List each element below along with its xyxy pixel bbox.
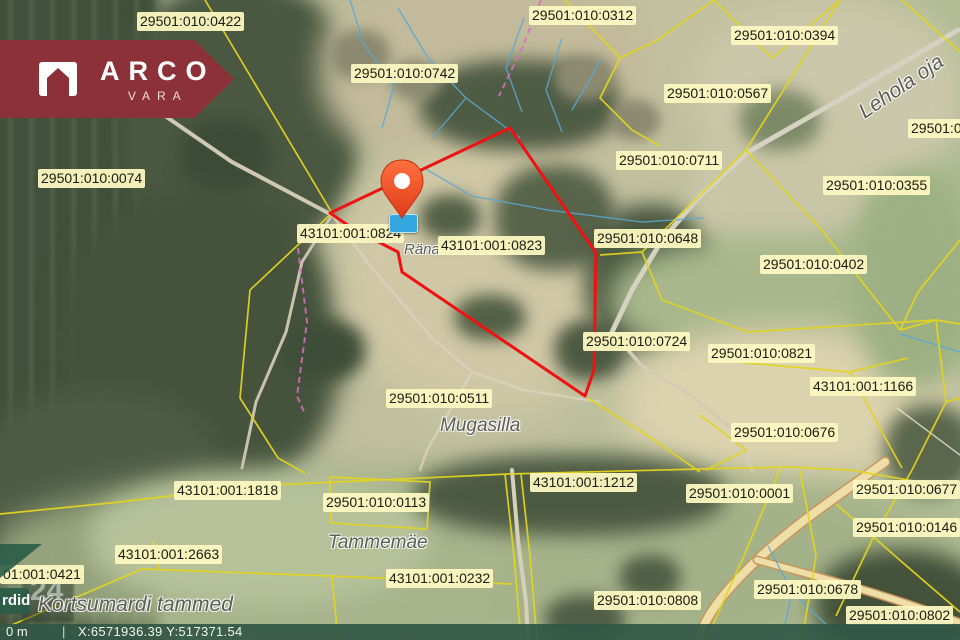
scale-bar-label: 0 m bbox=[6, 624, 28, 640]
parcel-label: 29501:010:0711 bbox=[616, 151, 722, 170]
parcel-label: 29501:010:0808 bbox=[594, 591, 701, 610]
parcel-label: 29501:010:0677 bbox=[853, 480, 960, 499]
arco-vara-logo: ARCO VARA bbox=[0, 40, 234, 118]
parcel-label: 43101:001:0232 bbox=[386, 569, 493, 588]
parcel-label: 29501:010:0146 bbox=[853, 518, 960, 537]
house-icon bbox=[38, 60, 78, 98]
parcel-label: 29501:010:0422 bbox=[137, 12, 244, 31]
cursor-coordinates: X:6571936.39 Y:517371.54 bbox=[78, 624, 243, 640]
parcel-label: 29501:010:0678 bbox=[754, 580, 861, 599]
parcel-label: 29501:010:0511 bbox=[386, 389, 492, 408]
parcel-label: 29501:010:0074 bbox=[38, 169, 145, 188]
highlight-parcel bbox=[330, 128, 596, 396]
parcel-label: 29501:010:0355 bbox=[823, 176, 930, 195]
parcel-label: 29501:010:0802 bbox=[846, 606, 953, 625]
status-bar: 0 m | X:6571936.39 Y:517371.54 bbox=[0, 624, 960, 640]
parcel-label: 43101:001:1818 bbox=[174, 481, 281, 500]
parcel-label: 29501:010:0648 bbox=[594, 229, 701, 248]
logo-title: ARCO bbox=[100, 56, 216, 87]
parcel-label: 29501:010:0312 bbox=[529, 6, 636, 25]
parcel-label: 29501:0 bbox=[908, 119, 960, 138]
parcel-label: 29501:010:0001 bbox=[686, 484, 793, 503]
logo-text: ARCO VARA bbox=[100, 56, 216, 103]
parcel-label: 29501:010:0724 bbox=[583, 332, 690, 351]
parcel-label: 29501:010:0113 bbox=[323, 493, 429, 512]
map-viewport[interactable]: Lehola ojaRänandsovaMugasillaTammemäeKor… bbox=[0, 0, 960, 640]
parcel-label: 43101:001:1212 bbox=[530, 473, 637, 492]
parcel-label: 29501:010:0402 bbox=[760, 255, 867, 274]
parcel-label: 43101:001:2663 bbox=[115, 545, 222, 564]
parcel-label: 29501:010:0742 bbox=[351, 64, 458, 83]
place-name: Mugasilla bbox=[440, 415, 520, 437]
parcel-label: 01:001:0421 bbox=[0, 565, 84, 584]
parcel-label: 29501:010:0676 bbox=[731, 423, 838, 442]
parcel-label: 29501:010:0394 bbox=[731, 26, 838, 45]
maps-button-cut[interactable]: rdid bbox=[0, 588, 29, 614]
parcel-label: 29501:010:0567 bbox=[664, 84, 771, 103]
status-bar-separator: | bbox=[62, 624, 65, 640]
place-name: Kortsumardi tammed bbox=[38, 593, 233, 617]
parcel-label: 43101:001:0823 bbox=[438, 236, 545, 255]
parcel-label: 29501:010:0821 bbox=[708, 344, 815, 363]
place-name: Tammemäe bbox=[328, 532, 428, 554]
logo-subtitle: VARA bbox=[128, 89, 188, 103]
parcel-label: 43101:001:1166 bbox=[810, 377, 916, 396]
location-pin-icon[interactable] bbox=[378, 158, 426, 220]
